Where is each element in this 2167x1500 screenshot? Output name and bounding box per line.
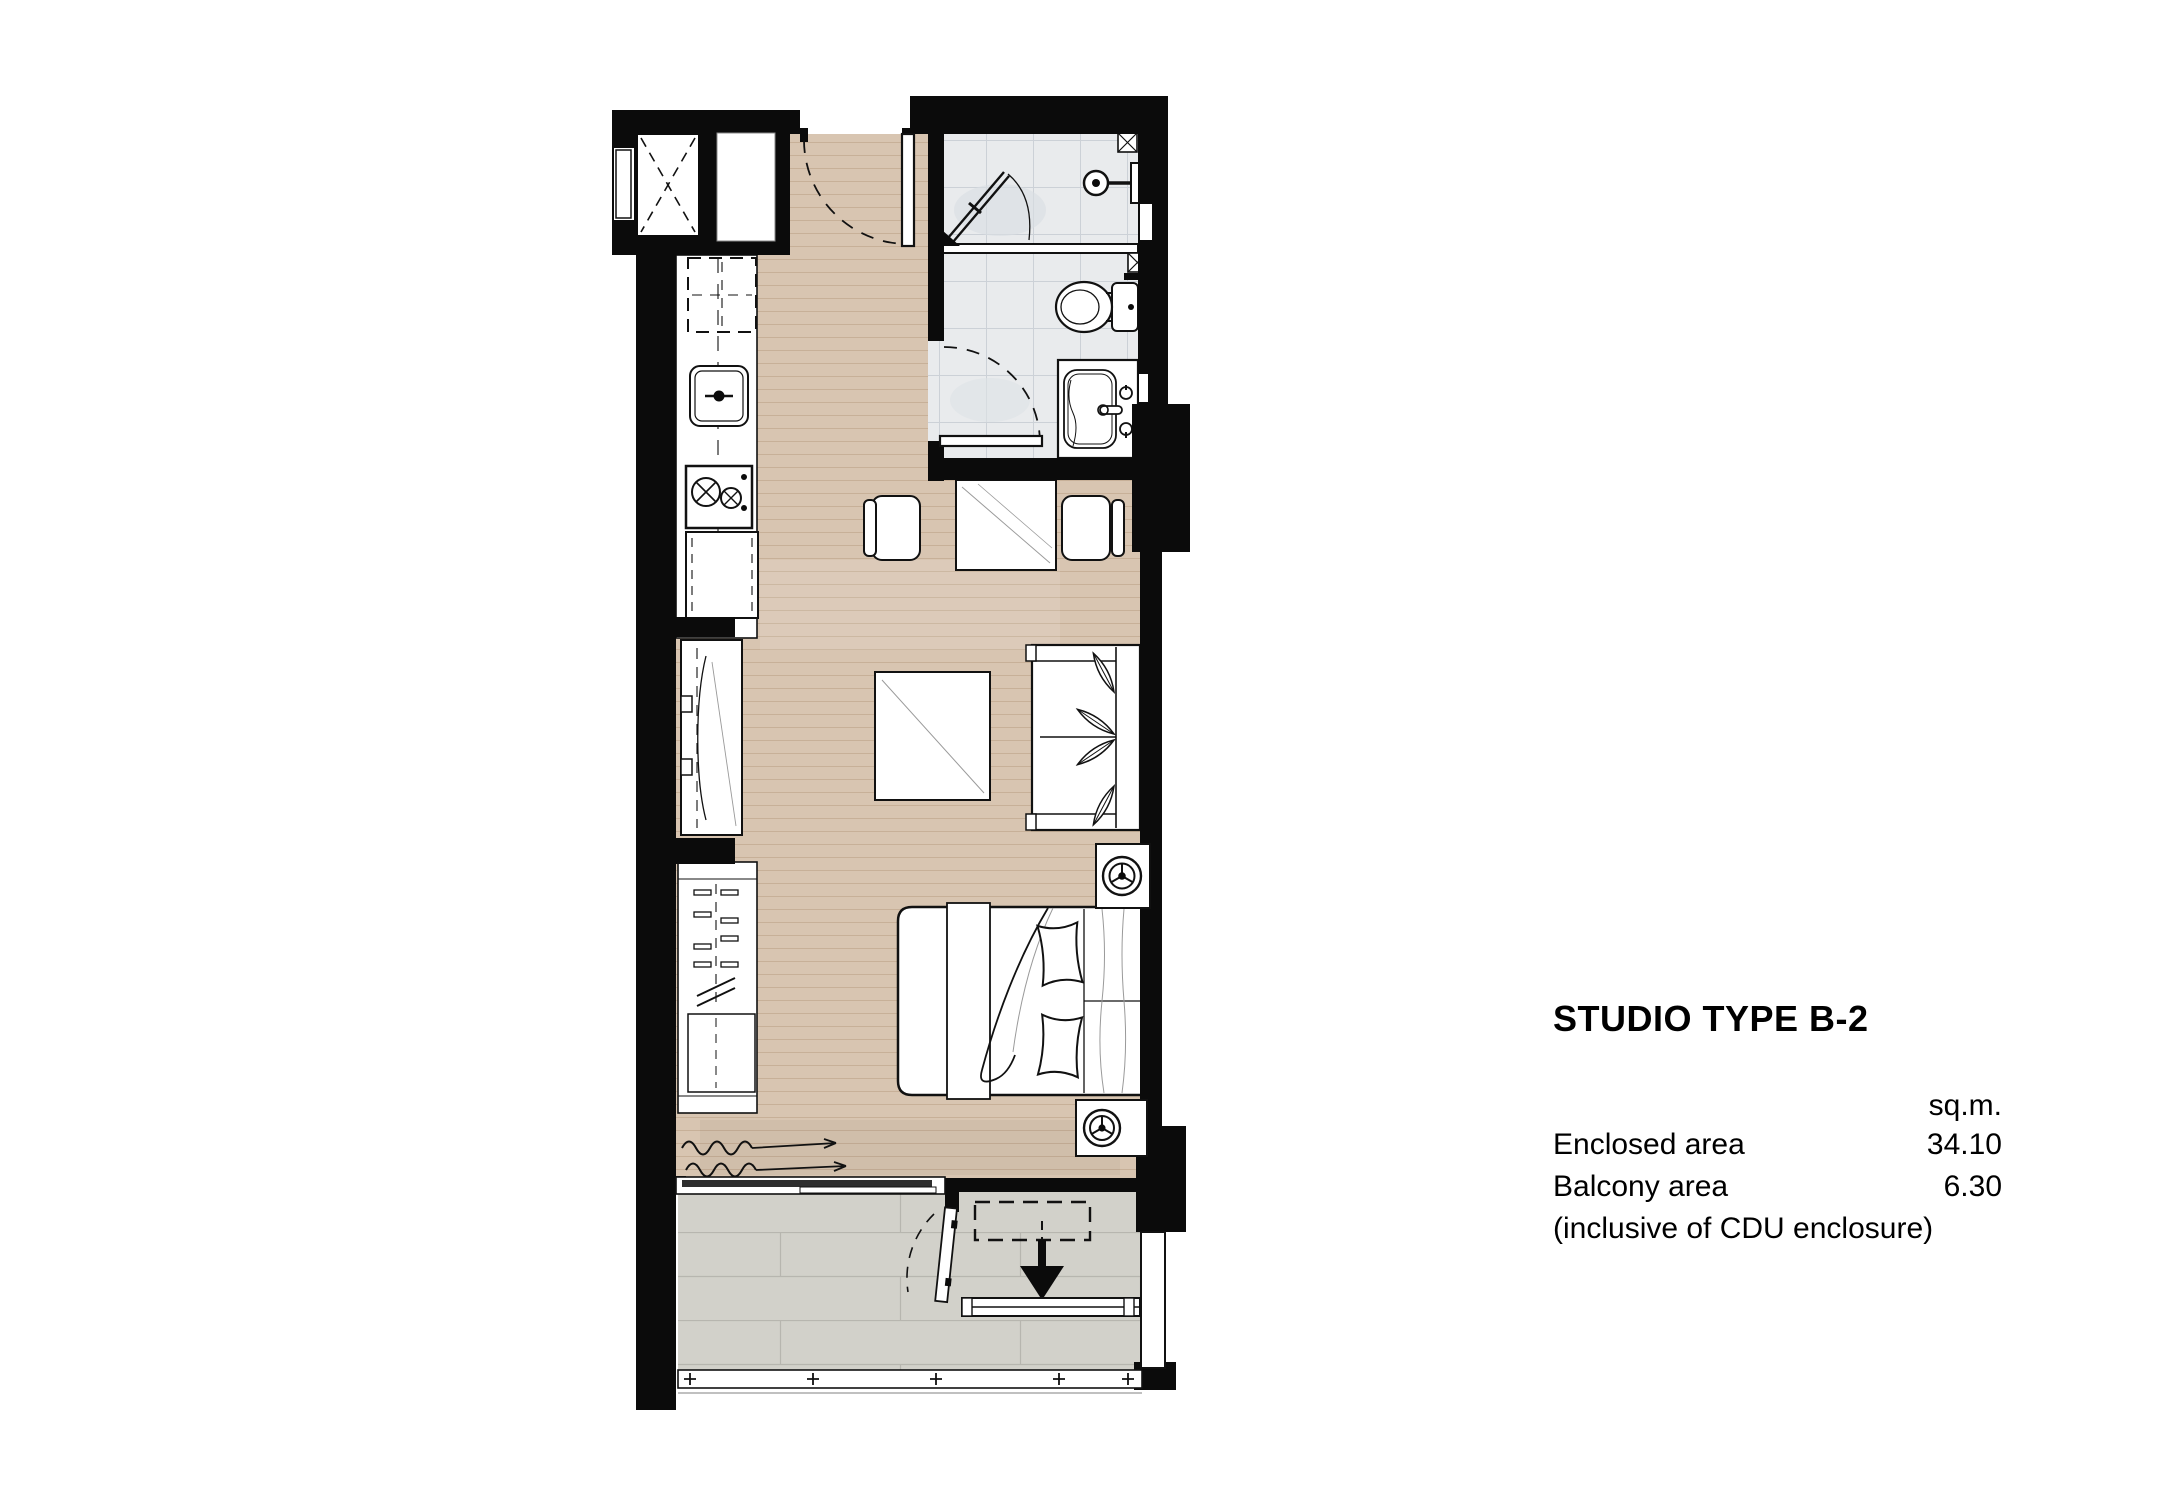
wall-niche [1139, 374, 1148, 402]
double-bed [898, 903, 1142, 1099]
area-row-value: 34.10 [1927, 1128, 2002, 1161]
base-cabinet [686, 532, 758, 618]
tv-bracket-icon [681, 696, 692, 712]
floor-drain-icon [1118, 133, 1137, 152]
vanity-basin [1058, 360, 1138, 458]
louver-screen [962, 1298, 1140, 1316]
tv-bracket-icon [681, 759, 692, 775]
wardrobe [678, 862, 757, 1113]
coffee-table [875, 672, 990, 800]
shaft-access-door [614, 141, 634, 227]
kitchen-sink [690, 366, 748, 426]
area-note: (inclusive of CDU enclosure) [1553, 1212, 1933, 1245]
area-row-value: 6.30 [1944, 1170, 2002, 1203]
dining-table [956, 480, 1056, 570]
area-row-label: Enclosed area [1553, 1128, 1745, 1161]
cooktop [686, 466, 752, 528]
unit-header: sq.m. [1929, 1089, 2002, 1122]
glass-partition [942, 244, 1138, 253]
left-wall [636, 134, 676, 1410]
bathroom-left-wall [928, 134, 944, 341]
dining-chair [1062, 496, 1124, 560]
wall-niche [1140, 204, 1152, 240]
toilet [1056, 282, 1138, 332]
kitchen-floor [757, 253, 930, 482]
balcony-floor [678, 1192, 1140, 1372]
faucet-icon [714, 391, 725, 402]
dining-chair [864, 496, 920, 560]
kitchenette [676, 255, 758, 638]
tv-console [681, 640, 742, 835]
sofa [1026, 645, 1140, 830]
door-jamb [800, 128, 808, 142]
balcony-railing [678, 1370, 1142, 1393]
title-block: STUDIO TYPE B-2 sq.m. Enclosed area 34.1… [1553, 998, 2002, 1245]
utility-shaft [638, 135, 698, 235]
fan-coil-unit [1076, 1100, 1147, 1156]
plan-title: STUDIO TYPE B-2 [1553, 998, 1869, 1039]
right-wall [1140, 480, 1162, 1180]
area-row-label: Balcony area [1553, 1170, 1728, 1203]
fan-coil-unit [1096, 844, 1150, 908]
floorplan-page: STUDIO TYPE B-2 sq.m. Enclosed area 34.1… [0, 0, 2167, 1500]
built-in-closet [717, 133, 775, 241]
sliding-glass-door [676, 1177, 945, 1194]
faucet-icon [1100, 406, 1122, 414]
enclosure-side-wall [1141, 1232, 1165, 1368]
floorplan-drawing: STUDIO TYPE B-2 sq.m. Enclosed area 34.1… [0, 0, 2167, 1500]
